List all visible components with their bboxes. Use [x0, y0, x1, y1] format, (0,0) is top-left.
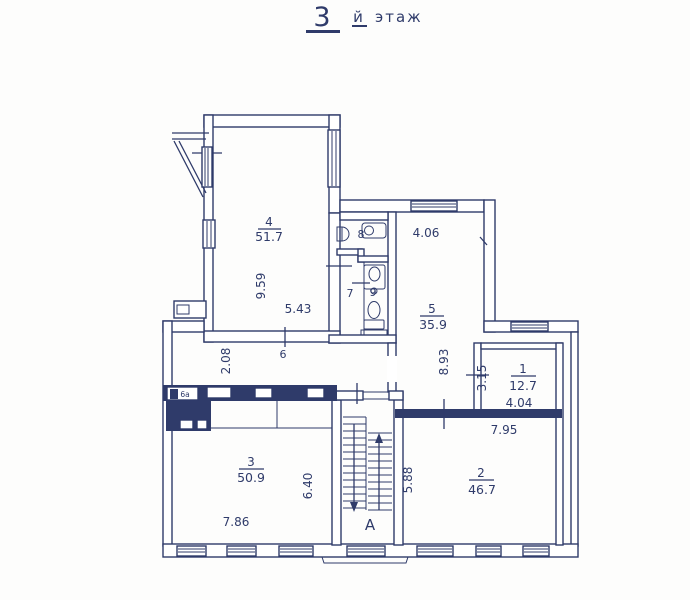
room-1-width-dim: 4.04: [506, 396, 533, 410]
floor-number-underline: [306, 30, 340, 33]
window-icon: [476, 546, 501, 556]
room-1-area: 12.7: [509, 378, 537, 393]
wall-niche: [174, 301, 206, 318]
room-8-number: 8: [358, 228, 365, 241]
room-9-number: 9: [370, 286, 377, 299]
room-3-number: 3: [247, 455, 255, 469]
window-icon: [227, 546, 256, 556]
room-6-number: 6: [280, 348, 287, 361]
stair-down-arrow-icon: [350, 424, 358, 512]
sink-icon: [362, 223, 386, 238]
floor-word: этаж: [375, 8, 423, 26]
plan-title: 3 й этаж: [306, 2, 423, 33]
toilet-icon: [361, 302, 387, 336]
room-2-height-dim: 5.88: [401, 467, 415, 494]
room-1-number: 1: [519, 362, 527, 376]
room-3-area: 50.9: [237, 470, 265, 485]
stair-up-arrow-icon: [375, 433, 383, 510]
room-3-height-dim: 6.40: [301, 473, 315, 500]
room-2-number: 2: [477, 466, 485, 480]
window-icon: [328, 130, 340, 187]
room-2-width-dim: 7.95: [491, 423, 518, 437]
window-icon: [202, 147, 212, 187]
stairwell-letter: А: [365, 516, 376, 534]
window-icon: [411, 201, 457, 211]
floor-suffix: й: [353, 8, 365, 26]
stair-steps-right-flight: [368, 433, 392, 510]
room-3-width-dim: 7.86: [223, 515, 250, 529]
room-4-number: 4: [265, 215, 273, 229]
staircase: [343, 392, 392, 512]
window-icon: [203, 220, 215, 248]
room-6a-number: 6а: [180, 390, 189, 399]
room-6-height-dim: 2.08: [219, 348, 233, 375]
room-5-height-dim: 8.93: [437, 349, 451, 376]
floor-suffix-underline: [352, 25, 367, 27]
floor-plan-page: 3 й этаж 4 51.7 9.59 5.43 5 35.9 4.06 8.…: [0, 0, 690, 600]
room-4-width-dim: 5.43: [285, 302, 312, 316]
room-2-area: 46.7: [468, 482, 496, 497]
room-4-area: 51.7: [255, 229, 283, 244]
room-5-area: 35.9: [419, 317, 447, 332]
room-1-height-dim: 3.15: [475, 365, 489, 392]
window-icon: [511, 322, 548, 331]
window-icon: [177, 546, 206, 556]
window-icon: [417, 546, 453, 556]
window-icon: [523, 546, 549, 556]
room-5-number: 5: [428, 302, 436, 316]
window-icon: [279, 546, 313, 556]
room-4-height-dim: 9.59: [254, 273, 268, 300]
window-icon: [347, 546, 385, 556]
floor-number: 3: [313, 2, 330, 33]
triangular-bay: [172, 133, 222, 197]
room-5-width-dim: 4.06: [413, 226, 440, 240]
floor-plan-drawing: 3 й этаж 4 51.7 9.59 5.43 5 35.9 4.06 8.…: [0, 0, 690, 600]
room-7-number: 7: [347, 287, 354, 300]
